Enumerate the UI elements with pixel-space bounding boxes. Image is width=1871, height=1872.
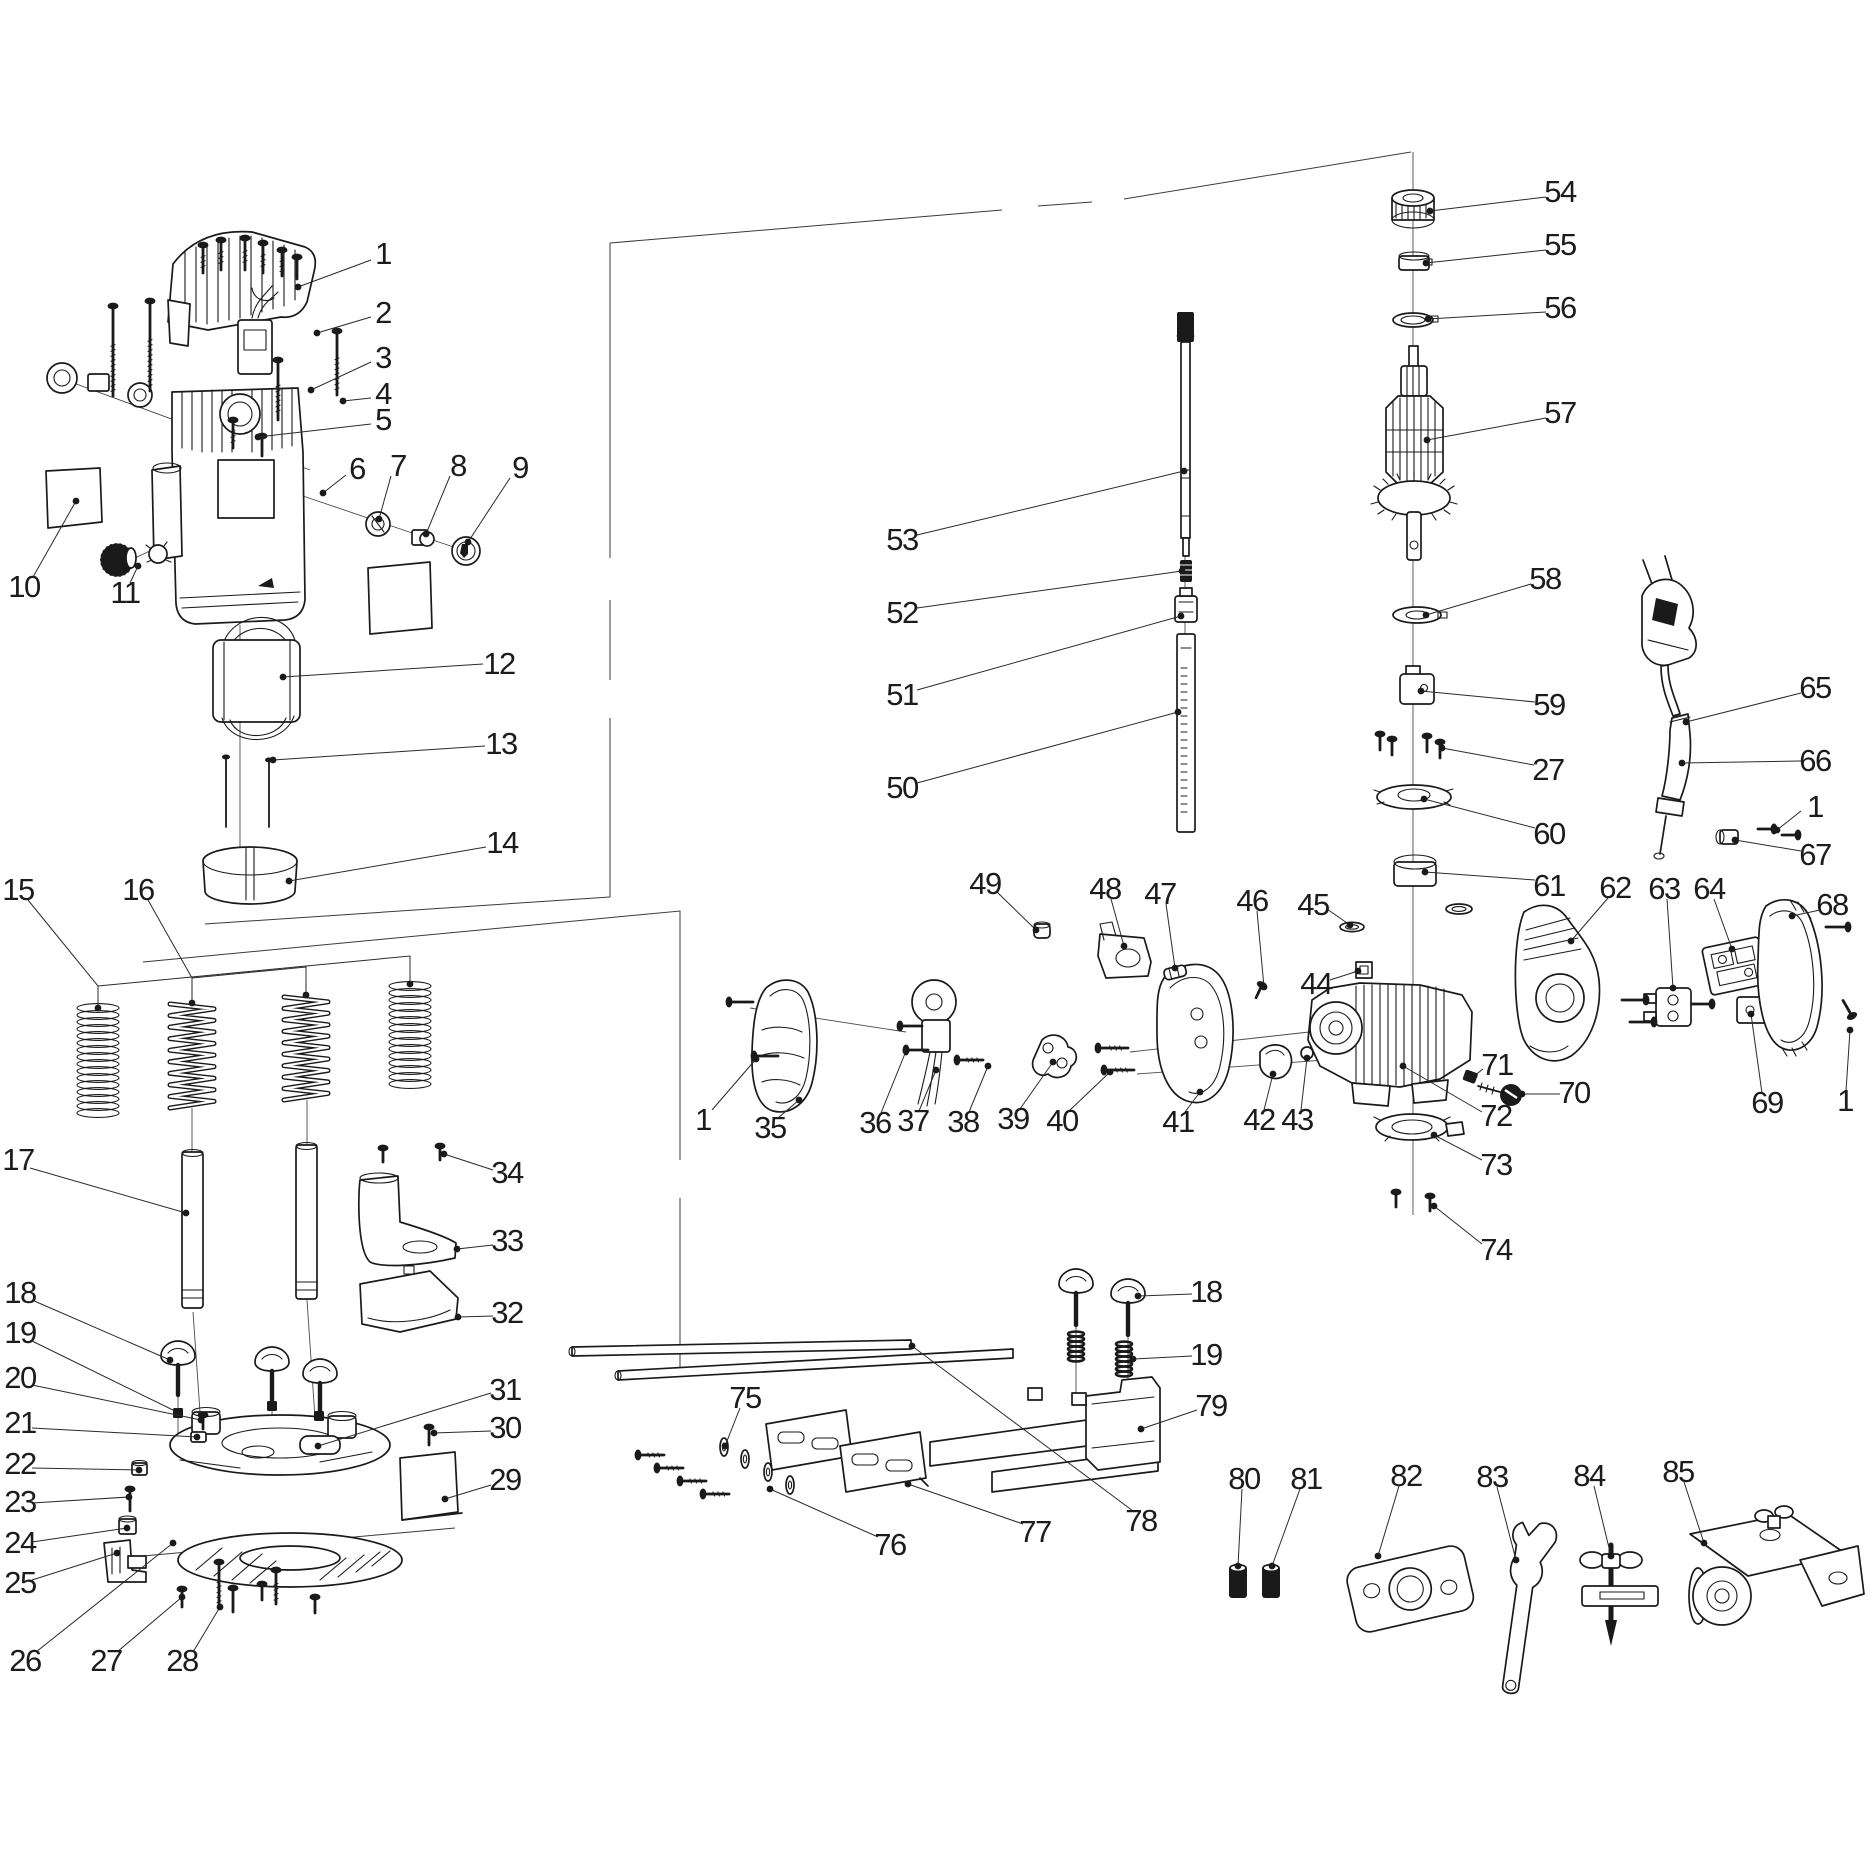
part-number-label: 1	[375, 236, 391, 271]
part-61-spindle-collar	[1394, 855, 1436, 886]
part-number-label: 40	[1046, 1103, 1079, 1138]
part-number-label: 68	[1816, 887, 1848, 922]
part-number-label: 84	[1573, 1458, 1606, 1493]
part-number-label: 1	[1837, 1083, 1853, 1118]
part-number-label: 66	[1799, 743, 1831, 778]
part-number-label: 83	[1476, 1459, 1508, 1494]
part-number-label: 12	[483, 646, 515, 681]
part-number-label: 8	[450, 448, 466, 483]
part-number-label: 41	[1162, 1104, 1194, 1139]
part-number-label: 81	[1290, 1461, 1322, 1496]
part-number-label: 63	[1648, 871, 1680, 906]
part-81-brush-sleeve	[1262, 1565, 1280, 1598]
part-78-guide-rods	[569, 1340, 1013, 1380]
part-85-roller-guide	[1689, 1506, 1864, 1625]
part-number-label: 7	[390, 448, 406, 483]
part-58-washer	[1393, 607, 1447, 623]
part-number-label: 23	[4, 1484, 36, 1519]
part-number-label: 65	[1799, 670, 1831, 705]
part-number-label: 9	[512, 450, 528, 485]
screw-icon	[1095, 1043, 1128, 1054]
part-66-cord-guard	[1654, 714, 1691, 859]
part-number-label: 32	[491, 1295, 523, 1330]
part-number-label: 72	[1480, 1098, 1512, 1133]
part-number-label: 37	[897, 1103, 929, 1138]
screw-icon	[378, 1145, 389, 1162]
part-35-handle-grip-left	[752, 980, 817, 1112]
part-83-wrench	[1491, 1519, 1558, 1697]
wing-knob-icon	[255, 1347, 289, 1401]
coil-springs	[77, 982, 1132, 1377]
part-25-lock-bracket	[104, 1540, 146, 1582]
part-number-label: 60	[1533, 816, 1566, 851]
screw-icon	[700, 1489, 729, 1500]
part-12-stator	[213, 617, 300, 739]
part-number-label: 13	[485, 726, 517, 761]
part-number-label: 49	[969, 866, 1001, 901]
part-number-label: 46	[1236, 883, 1268, 918]
part-number-label: 59	[1533, 687, 1565, 722]
washer-icon	[741, 1450, 749, 1468]
part-number-label: 25	[4, 1565, 36, 1600]
part-57-armature	[1371, 346, 1457, 560]
screw-icon	[257, 1581, 268, 1600]
part-number-label: 54	[1544, 174, 1577, 209]
part-14-clamp-ring	[203, 847, 297, 904]
part-26-base-plate	[178, 1533, 402, 1587]
part-60-fan-washer	[1374, 785, 1453, 809]
part-number-label: 29	[489, 1462, 521, 1497]
part-number-label: 22	[4, 1446, 36, 1481]
part-number-label: 64	[1693, 871, 1726, 906]
part-number-label: 76	[874, 1527, 906, 1562]
screw-icon	[310, 1594, 321, 1613]
washer-icon	[764, 1463, 772, 1481]
part-number-label: 24	[4, 1525, 37, 1560]
part-29-chip-deflector	[400, 1452, 462, 1520]
part-number-label: 3	[375, 340, 391, 375]
part-62-gear-housing	[1515, 905, 1599, 1060]
part-number-label: 20	[4, 1360, 37, 1395]
part-7-brush-cap	[366, 512, 390, 536]
exploded-parts-diagram: 1234567891011121314151617181920212223242…	[0, 0, 1871, 1872]
screw-icon	[222, 755, 230, 827]
part-number-label: 73	[1480, 1147, 1512, 1182]
part-number-label: 79	[1195, 1388, 1227, 1423]
part-number-label: 85	[1662, 1454, 1694, 1489]
part-72-motor-housing-lower	[1308, 983, 1472, 1106]
part-39-brush-plate	[1033, 1035, 1077, 1077]
part-number-label: 43	[1281, 1102, 1313, 1137]
part-number-label: 70	[1558, 1075, 1591, 1110]
part-82-template-guide	[1344, 1543, 1476, 1634]
part-number-label: 33	[491, 1223, 523, 1258]
part-number-label: 27	[90, 1643, 122, 1678]
part-53-depth-rod	[1177, 312, 1194, 556]
part-number-label: 2	[375, 295, 391, 330]
part-number-label: 1	[1807, 789, 1823, 824]
screw-icon	[954, 1055, 983, 1066]
wing-knob-icon	[161, 1341, 195, 1395]
part-number-label: 1	[695, 1102, 711, 1137]
part-number-label: 58	[1529, 561, 1561, 596]
bearing-and-caps-left	[47, 363, 152, 407]
part-number-label: 6	[349, 451, 365, 486]
fasteners	[108, 235, 1859, 1613]
part-33-handle-support	[359, 1173, 456, 1265]
part-number-label: 14	[486, 825, 519, 860]
part-59-bearing-block	[1400, 666, 1434, 704]
part-number-label: 80	[1228, 1461, 1261, 1496]
part-32-handle-base	[360, 1266, 458, 1332]
part-number-label: 10	[8, 569, 41, 604]
part-65-power-cord-plug	[1642, 556, 1696, 725]
part-number-label: 77	[1019, 1514, 1051, 1549]
screw-icon	[228, 1585, 239, 1612]
washer-icon	[786, 1476, 794, 1494]
screw-icon	[1692, 999, 1715, 1010]
part-number-label: 44	[1300, 966, 1333, 1001]
part-number-label: 21	[4, 1405, 36, 1440]
part-number-label: 78	[1125, 1503, 1157, 1538]
part-number-label: 69	[1751, 1085, 1783, 1120]
screw-icon	[1391, 1189, 1402, 1207]
screw-icon	[1375, 731, 1386, 750]
screw-icon	[1387, 736, 1398, 755]
part-80-brush-sleeve	[1229, 1565, 1247, 1598]
part-number-label: 61	[1533, 868, 1565, 903]
part-6-motor-housing	[152, 388, 305, 624]
part-number-label: 5	[375, 402, 391, 437]
part-number-label: 18	[1190, 1274, 1222, 1309]
part-50-depth-scale	[1177, 634, 1195, 832]
part-number-label: 75	[729, 1380, 761, 1415]
part-number-label: 71	[1481, 1047, 1513, 1082]
wing-knob-icon	[1059, 1269, 1093, 1325]
screw-icon	[726, 997, 753, 1008]
screw-icon	[145, 298, 156, 391]
part-number-label: 19	[1190, 1337, 1222, 1372]
part-number-label: 19	[4, 1315, 36, 1350]
part-number-label: 18	[4, 1275, 36, 1310]
part-77-clamp-plate-b	[840, 1432, 928, 1492]
part-number-label: 57	[1544, 395, 1576, 430]
screw-icon	[1101, 1065, 1134, 1076]
part-48-lock-lever	[1098, 922, 1151, 978]
wing-knob-icon	[1111, 1279, 1145, 1335]
part-number-label: 62	[1599, 870, 1631, 905]
part-41-handle-grip-right	[1157, 964, 1233, 1102]
part-number-label: 45	[1297, 887, 1329, 922]
part-number-label: 28	[166, 1643, 198, 1678]
part-number-label: 11	[110, 575, 139, 610]
screw-icon	[1622, 995, 1649, 1006]
part-number-label: 39	[997, 1101, 1029, 1136]
part-number-label: 34	[491, 1155, 524, 1190]
part-84-trammel-point	[1580, 1545, 1658, 1646]
screw-icon	[654, 1463, 683, 1474]
part-68-handle-shell-right	[1758, 900, 1822, 1056]
part-number-label: 42	[1243, 1102, 1275, 1137]
screw-icon	[677, 1476, 706, 1487]
part-number-label: 55	[1544, 227, 1576, 262]
part-17-guide-columns	[182, 1143, 317, 1309]
part-number-label: 27	[1532, 752, 1564, 787]
part-number-label: 47	[1144, 876, 1176, 911]
part-number-label: 74	[1480, 1232, 1513, 1267]
part-79-edge-guide-body	[930, 1377, 1160, 1492]
screw-icon	[1422, 733, 1433, 752]
screw-icon	[265, 758, 273, 827]
part-number-label: 26	[9, 1643, 41, 1678]
part-number-label: 38	[947, 1104, 979, 1139]
part-76-clamp-plate-a	[766, 1410, 852, 1470]
o-rings	[1340, 904, 1472, 932]
part-number-label: 48	[1089, 871, 1121, 906]
screw-icon	[1826, 922, 1851, 933]
part-56-retainer-ring	[1393, 313, 1438, 327]
part-73-fan-baffle	[1374, 1114, 1464, 1141]
screw-icon	[635, 1450, 664, 1461]
part-number-label: 30	[489, 1410, 522, 1445]
part-number-label: 51	[886, 677, 918, 712]
screw-icon	[332, 328, 343, 395]
wing-knob-icon	[303, 1359, 337, 1413]
part-number-label: 52	[886, 595, 918, 630]
part-number-label: 82	[1390, 1458, 1422, 1493]
part-number-label: 16	[122, 872, 154, 907]
part-number-label: 50	[886, 770, 919, 805]
part-number-label: 17	[2, 1142, 34, 1177]
part-number-label: 31	[489, 1372, 521, 1407]
screw-icon	[897, 1021, 922, 1032]
part-37-speed-dial	[912, 980, 956, 1106]
diagram-page: 1234567891011121314151617181920212223242…	[0, 0, 1871, 1872]
part-number-label: 67	[1799, 837, 1831, 872]
part-number-label: 56	[1544, 290, 1576, 325]
part-number-label: 53	[886, 522, 918, 557]
part-number-label: 35	[754, 1110, 786, 1145]
part-number-label: 15	[2, 872, 34, 907]
part-number-label: 36	[859, 1105, 891, 1140]
screw-icon	[1838, 998, 1858, 1022]
